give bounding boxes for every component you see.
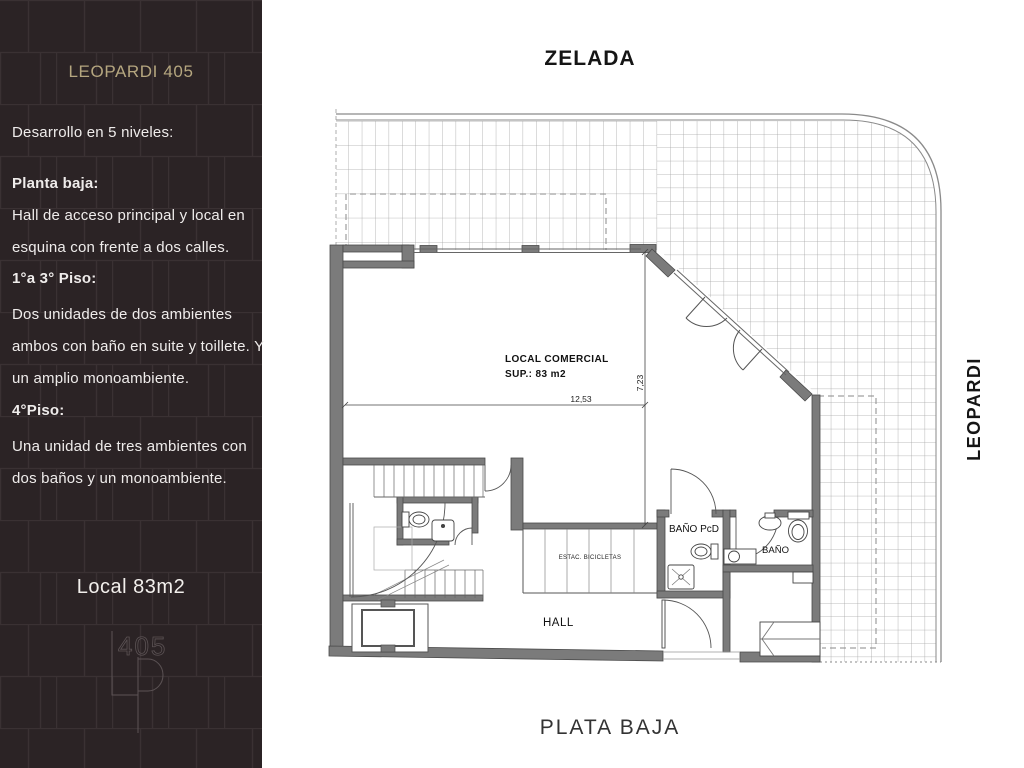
dimension-width-label: 12,53	[561, 394, 601, 404]
dimension-lines	[342, 249, 648, 528]
staircase	[374, 465, 485, 600]
room-label-hall: HALL	[543, 617, 574, 629]
room-label-local-comercial: LOCAL COMERCIAL	[505, 354, 609, 365]
dimension-depth-label: 7,23	[635, 365, 645, 401]
bike-parking	[523, 529, 657, 593]
street-name-top: ZELADA	[505, 47, 675, 71]
room-label-bano-pcd: BAÑO PcD	[659, 524, 729, 535]
brochure-page: LEOPARDI 405 Desarrollo en 5 niveles: Pl…	[0, 0, 1024, 768]
elevator	[352, 600, 428, 652]
floor-plan-drawing	[0, 0, 1024, 768]
plan-caption: PLATA BAJA	[530, 716, 690, 740]
street-name-right: LEOPARDI	[964, 334, 986, 484]
room-label-bike-parking: ESTAC. BICICLETAS	[540, 555, 640, 561]
room-label-bano: BAÑO	[753, 545, 798, 556]
room-label-local-surface: SUP.: 83 m2	[505, 369, 566, 380]
